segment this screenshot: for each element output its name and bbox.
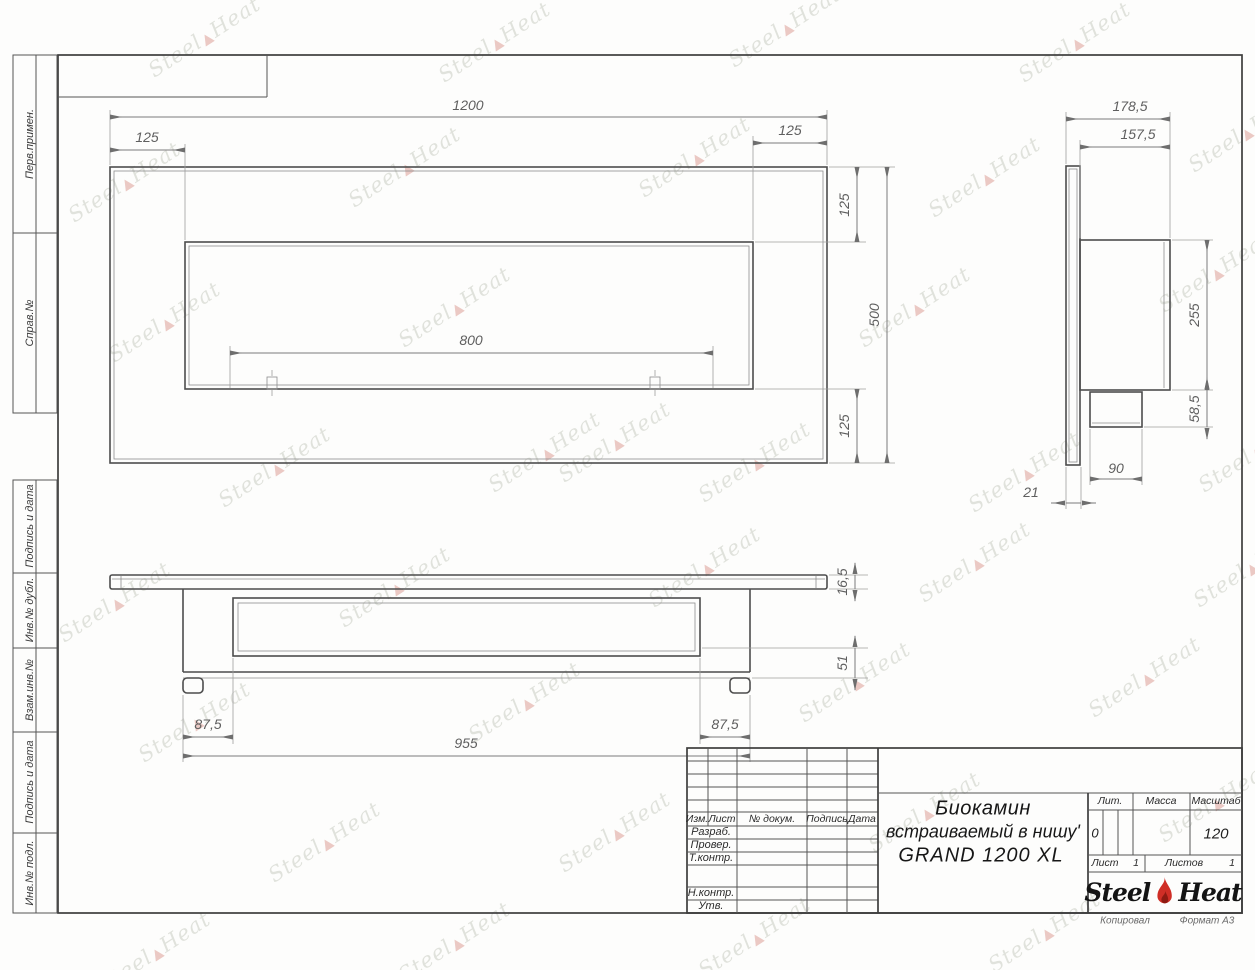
dim-front-margin-left: 125: [135, 129, 159, 145]
tb-scale-value: 120: [1203, 826, 1228, 843]
footer-kopiroval: Копировал: [1100, 916, 1150, 927]
drawing-sheet: Steel▲HeatSteel▲HeatSteel▲HeatSteel▲Heat…: [0, 0, 1255, 970]
strip-label-inv-podl: Инв.№ подл.: [24, 840, 36, 905]
dim-front-margin-right: 125: [778, 122, 802, 138]
dim-bottom-offset-left: 87,5: [194, 716, 221, 732]
doc-title-line3: GRAND 1200 XL: [898, 845, 1063, 868]
dim-front-total: 1200: [452, 97, 483, 113]
tb-header-data: Дата: [848, 813, 876, 825]
burner-clip-left: [267, 377, 277, 389]
logo-heat-text: Heat: [1178, 878, 1241, 907]
foot-right: [730, 678, 750, 693]
tb-sheet-label: Лист: [1091, 857, 1118, 869]
side-view: 178,5 157,5 255 58,5 90 21: [1022, 98, 1213, 509]
tb-staff-prover: Провер.: [691, 839, 732, 851]
dim-bottom-niche-width: 955: [454, 735, 478, 751]
tb-lit-value: 0: [1091, 826, 1098, 841]
dim-front-height: 500: [866, 303, 882, 327]
dim-side-box-height: 58,5: [1186, 395, 1202, 422]
dim-bottom-tray-depth: 51: [834, 655, 850, 671]
strip-label-podpis-data-2: Подпись и дата: [24, 740, 36, 823]
dim-front-opening: 800: [459, 332, 483, 348]
strip-label-vzam-inv: Взам.инв.№: [24, 659, 36, 721]
front-view: 1200 125 125 800 125 500 125: [110, 97, 895, 463]
tb-header-dokum: № докум.: [749, 813, 795, 825]
tb-sheet-value: 1: [1133, 857, 1139, 869]
tb-staff-razrab: Разраб.: [691, 826, 731, 838]
dim-side-body-height: 255: [1186, 303, 1202, 328]
doc-title-line1: Биокамин: [935, 798, 1031, 821]
dim-front-top: 125: [836, 193, 852, 217]
tb-mass-label: Масса: [1145, 795, 1176, 807]
strip-label-podpis-data-1: Подпись и дата: [24, 484, 36, 567]
tb-header-list: Лист: [708, 813, 735, 825]
steel-heat-logo: Steel Heat: [1084, 877, 1241, 907]
dim-bottom-offset-right: 87,5: [711, 716, 738, 732]
tb-sheets-label: Листов: [1165, 857, 1203, 869]
foot-left: [183, 678, 203, 693]
tb-header-izm: Изм.: [686, 813, 708, 825]
burner-tray: [233, 598, 700, 656]
footer-format: Формат А3: [1180, 916, 1235, 927]
flame-icon: [1153, 877, 1175, 907]
doc-title-line2: встраиваемый в нишу': [886, 822, 1080, 843]
dim-side-box-width: 90: [1108, 460, 1124, 476]
sheet-frame: [58, 55, 1242, 913]
strip-label-sprav: Справ.№: [24, 300, 36, 347]
tb-staff-nkontr: Н.контр.: [688, 887, 735, 899]
dim-side-total-depth: 178,5: [1112, 98, 1147, 114]
tb-header-podpis: Подпись: [806, 813, 848, 825]
dim-side-body-depth: 157,5: [1120, 126, 1155, 142]
tb-staff-utv: Утв.: [699, 900, 724, 912]
tb-lit-label: Лит.: [1098, 795, 1123, 807]
dim-front-bottom: 125: [836, 414, 852, 438]
dim-side-panel-thickness: 21: [1022, 484, 1039, 500]
dim-bottom-plate: 16,5: [834, 568, 850, 595]
logo-steel-text: Steel: [1084, 878, 1150, 907]
strip-label-perv-primen: Перв.примен.: [24, 109, 36, 179]
tb-staff-tkontr: Т.контр.: [689, 852, 733, 864]
tb-sheets-value: 1: [1229, 857, 1235, 869]
burner-clip-right: [650, 377, 660, 389]
bottom-view: 16,5 51 87,5 87,5 955: [110, 563, 868, 762]
strip-label-inv-dubl: Инв.№ дубл.: [24, 578, 36, 643]
tb-scale-label: Масштаб: [1191, 795, 1240, 807]
